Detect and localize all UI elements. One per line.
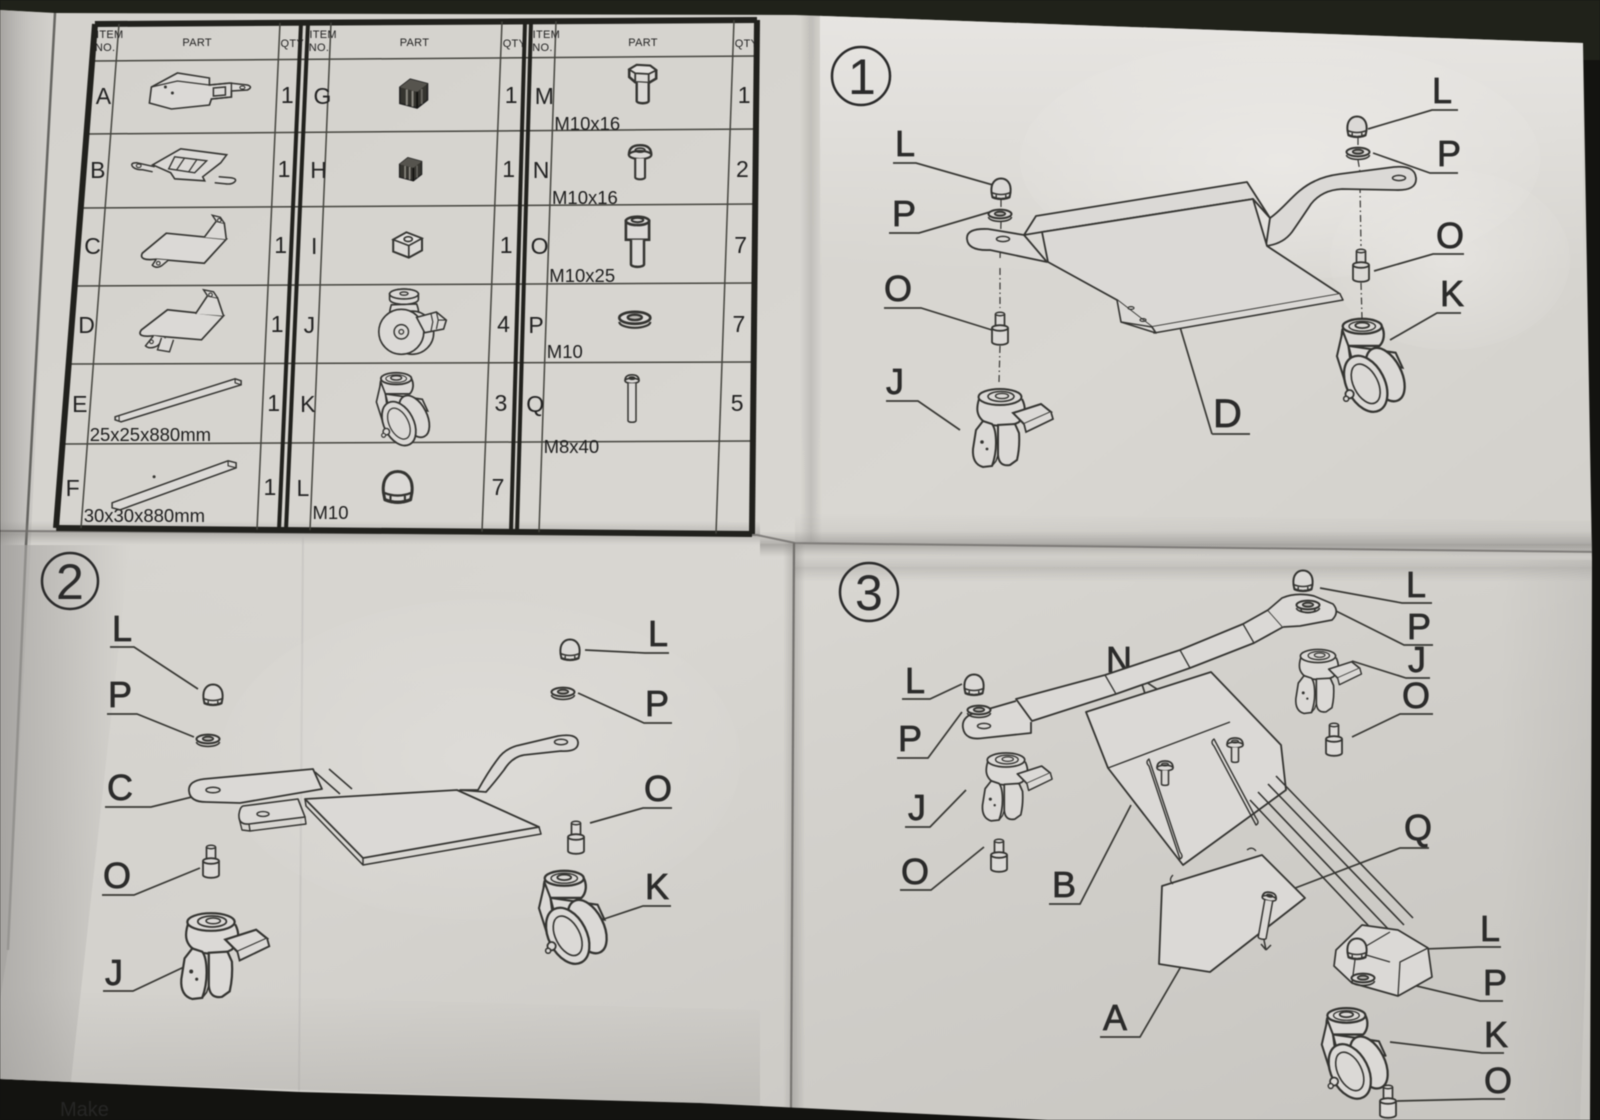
svg-text:QTY: QTY bbox=[735, 38, 759, 50]
svg-text:P: P bbox=[892, 193, 916, 234]
svg-text:L: L bbox=[1480, 908, 1500, 949]
svg-text:L: L bbox=[905, 660, 925, 701]
svg-text:A: A bbox=[1103, 997, 1127, 1038]
svg-text:2: 2 bbox=[736, 156, 749, 182]
svg-text:M8x40: M8x40 bbox=[544, 436, 600, 457]
svg-text:ITEM: ITEM bbox=[309, 29, 336, 41]
svg-text:M10: M10 bbox=[547, 341, 583, 362]
svg-text:F: F bbox=[66, 475, 80, 501]
svg-text:NO.: NO. bbox=[95, 42, 115, 54]
svg-text:1: 1 bbox=[738, 82, 751, 108]
svg-text:1: 1 bbox=[505, 82, 518, 108]
svg-text:M10: M10 bbox=[313, 502, 349, 523]
svg-text:D: D bbox=[78, 312, 95, 338]
svg-text:P: P bbox=[108, 674, 132, 715]
svg-text:3: 3 bbox=[855, 565, 883, 621]
svg-text:P: P bbox=[645, 683, 669, 724]
svg-text:P: P bbox=[1483, 962, 1507, 1003]
svg-text:M10x25: M10x25 bbox=[549, 265, 615, 286]
svg-text:N: N bbox=[533, 157, 550, 183]
svg-text:I: I bbox=[311, 233, 317, 259]
svg-text:1: 1 bbox=[281, 82, 294, 108]
svg-text:L: L bbox=[297, 475, 310, 501]
svg-text:1: 1 bbox=[500, 232, 513, 258]
svg-text:K: K bbox=[645, 866, 669, 907]
svg-text:PART: PART bbox=[628, 37, 658, 49]
svg-text:3: 3 bbox=[495, 390, 508, 416]
svg-text:B: B bbox=[90, 157, 105, 183]
svg-text:1: 1 bbox=[278, 156, 291, 182]
svg-text:Q: Q bbox=[1404, 807, 1432, 848]
svg-text:J: J bbox=[908, 787, 926, 828]
svg-text:O: O bbox=[531, 233, 549, 259]
svg-text:D: D bbox=[1213, 392, 1242, 436]
svg-text:H: H bbox=[310, 157, 327, 183]
svg-text:K: K bbox=[1484, 1014, 1508, 1055]
svg-text:7: 7 bbox=[492, 474, 505, 500]
svg-text:O: O bbox=[1402, 675, 1430, 716]
svg-text:J: J bbox=[304, 312, 316, 338]
svg-text:P: P bbox=[1437, 133, 1461, 174]
svg-text:C: C bbox=[84, 233, 101, 259]
svg-text:1: 1 bbox=[274, 232, 287, 258]
svg-text:30x30x880mm: 30x30x880mm bbox=[84, 505, 205, 526]
svg-text:O: O bbox=[1436, 215, 1464, 256]
svg-text:1: 1 bbox=[271, 311, 284, 337]
svg-text:K: K bbox=[1440, 273, 1464, 314]
svg-text:O: O bbox=[103, 855, 131, 896]
svg-text:B: B bbox=[1052, 864, 1076, 905]
svg-text:J: J bbox=[886, 361, 904, 402]
svg-text:G: G bbox=[314, 83, 332, 109]
svg-text:ITEM: ITEM bbox=[533, 29, 560, 41]
svg-text:L: L bbox=[648, 613, 668, 654]
svg-text:M10x16: M10x16 bbox=[554, 113, 620, 134]
svg-text:O: O bbox=[1484, 1060, 1512, 1101]
svg-text:Make: Make bbox=[60, 1099, 109, 1120]
svg-text:A: A bbox=[96, 83, 112, 109]
svg-text:L: L bbox=[1432, 70, 1452, 111]
svg-text:ITEM: ITEM bbox=[96, 29, 123, 41]
svg-text:C: C bbox=[107, 767, 133, 808]
svg-text:25x25x880mm: 25x25x880mm bbox=[90, 424, 211, 445]
svg-text:PART: PART bbox=[182, 37, 212, 49]
svg-text:Q: Q bbox=[526, 391, 544, 417]
svg-text:L: L bbox=[895, 123, 915, 164]
svg-text:L: L bbox=[112, 608, 132, 649]
svg-text:L: L bbox=[1406, 564, 1426, 605]
svg-text:P: P bbox=[898, 718, 922, 759]
svg-text:7: 7 bbox=[733, 311, 746, 337]
svg-text:5: 5 bbox=[731, 390, 744, 416]
svg-text:1: 1 bbox=[848, 49, 876, 105]
svg-text:O: O bbox=[901, 851, 929, 892]
svg-text:1: 1 bbox=[502, 156, 515, 182]
svg-text:NO.: NO. bbox=[309, 42, 329, 54]
svg-text:M10x16: M10x16 bbox=[552, 187, 618, 208]
svg-text:4: 4 bbox=[497, 311, 510, 337]
svg-text:E: E bbox=[72, 391, 87, 417]
svg-text:QTY: QTY bbox=[503, 38, 527, 50]
svg-text:O: O bbox=[884, 268, 912, 309]
svg-text:K: K bbox=[300, 391, 316, 417]
svg-text:2: 2 bbox=[56, 554, 84, 610]
svg-text:7: 7 bbox=[734, 232, 747, 258]
svg-text:PART: PART bbox=[400, 37, 430, 49]
svg-text:NO.: NO. bbox=[532, 42, 552, 54]
svg-text:M: M bbox=[535, 83, 554, 109]
svg-text:P: P bbox=[528, 312, 543, 338]
svg-text:O: O bbox=[644, 768, 672, 809]
svg-text:J: J bbox=[105, 952, 123, 993]
svg-text:1: 1 bbox=[267, 390, 280, 416]
svg-text:QTY: QTY bbox=[281, 38, 305, 50]
svg-text:1: 1 bbox=[264, 474, 277, 500]
